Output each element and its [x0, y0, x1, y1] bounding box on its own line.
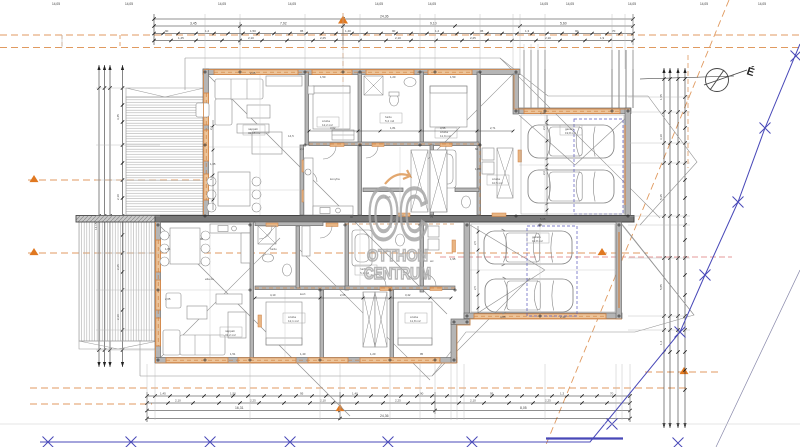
svg-text:1,20: 1,20: [390, 75, 396, 79]
svg-text:60: 60: [475, 147, 479, 151]
svg-text:24,36: 24,36: [380, 414, 389, 418]
svg-text:90: 90: [420, 391, 424, 395]
svg-text:95: 95: [420, 352, 424, 356]
svg-text:2,25: 2,25: [320, 36, 326, 40]
svg-text:5,85: 5,85: [659, 284, 663, 290]
svg-text:14,05: 14,05: [758, 2, 766, 6]
svg-text:14,05: 14,05: [52, 2, 60, 6]
svg-text:konyha: konyha: [330, 177, 340, 181]
svg-text:1,81: 1,81: [165, 247, 171, 251]
svg-text:1,45: 1,45: [160, 391, 166, 395]
svg-text:9,10: 9,10: [430, 21, 437, 25]
svg-text:19,8 m2: 19,8 m2: [565, 131, 576, 135]
svg-text:24,36: 24,36: [380, 14, 389, 18]
svg-text:etkezo: etkezo: [205, 277, 214, 281]
svg-text:32,15 m2: 32,15 m2: [248, 131, 261, 135]
svg-text:90: 90: [392, 29, 396, 33]
svg-text:14,05: 14,05: [375, 2, 383, 6]
svg-text:1,40: 1,40: [352, 391, 358, 395]
svg-text:3,10: 3,10: [659, 134, 663, 140]
svg-text:2,25: 2,25: [250, 398, 256, 402]
svg-text:11,9 m2: 11,9 m2: [440, 134, 451, 138]
svg-text:2,5: 2,5: [473, 241, 477, 245]
svg-text:5,60: 5,60: [560, 21, 567, 25]
svg-text:1,3: 1,3: [525, 29, 530, 33]
svg-text:2,05: 2,05: [165, 297, 171, 301]
svg-text:wc: wc: [430, 259, 434, 263]
svg-text:1,95: 1,95: [450, 257, 456, 261]
svg-text:2,6: 2,6: [542, 171, 546, 175]
svg-text:70: 70: [610, 391, 614, 395]
svg-text:90: 90: [165, 29, 169, 33]
svg-text:1,80: 1,80: [475, 167, 481, 171]
svg-text:1,50: 1,50: [320, 75, 326, 79]
svg-text:8,05: 8,05: [520, 406, 527, 410]
svg-text:12,1 m2: 12,1 m2: [288, 319, 299, 323]
svg-text:95: 95: [300, 391, 304, 395]
svg-text:OTTHON: OTTHON: [367, 246, 428, 265]
svg-text:3,45: 3,45: [116, 114, 120, 120]
svg-text:31,2 m2: 31,2 m2: [225, 333, 236, 337]
svg-text:2,25: 2,25: [545, 398, 551, 402]
svg-text:1,3: 1,3: [560, 391, 565, 395]
svg-text:3,42: 3,42: [405, 293, 411, 297]
svg-text:1,05: 1,05: [210, 162, 216, 166]
svg-text:2,25: 2,25: [470, 36, 476, 40]
svg-text:2,10: 2,10: [395, 36, 401, 40]
svg-text:2,10: 2,10: [248, 36, 254, 40]
svg-text:1,4: 1,4: [209, 176, 213, 180]
svg-text:14,05: 14,05: [566, 2, 574, 6]
svg-text:11,8 m2: 11,8 m2: [410, 319, 421, 323]
svg-text:1,2: 1,2: [435, 29, 440, 33]
svg-text:2,1: 2,1: [209, 126, 213, 130]
svg-text:16,31: 16,31: [235, 406, 244, 410]
svg-text:1,81: 1,81: [390, 126, 396, 130]
svg-text:OC: OC: [368, 175, 428, 255]
svg-text:1,45: 1,45: [178, 36, 184, 40]
svg-text:90: 90: [350, 215, 354, 219]
svg-text:1,4: 1,4: [659, 340, 663, 345]
svg-text:4,10: 4,10: [270, 293, 276, 297]
svg-text:2,40: 2,40: [560, 315, 566, 319]
svg-text:14,05: 14,05: [628, 2, 636, 6]
svg-text:2,10: 2,10: [175, 398, 181, 402]
svg-text:1,40: 1,40: [345, 29, 351, 33]
svg-text:kozl.: kozl.: [300, 292, 306, 296]
svg-text:2,10: 2,10: [116, 194, 120, 200]
svg-text:3,45: 3,45: [190, 21, 197, 25]
svg-text:14,05: 14,05: [700, 2, 708, 6]
svg-text:95: 95: [480, 29, 484, 33]
svg-text:2,05: 2,05: [340, 293, 346, 297]
svg-text:CENTRUM: CENTRUM: [364, 264, 431, 283]
svg-text:75: 75: [430, 215, 434, 219]
svg-text:14,05: 14,05: [218, 2, 226, 6]
svg-text:2,10: 2,10: [545, 36, 551, 40]
svg-text:2,5: 2,5: [473, 286, 477, 290]
svg-text:2,2: 2,2: [300, 147, 304, 151]
svg-text:1,40: 1,40: [300, 352, 306, 356]
svg-text:1,50: 1,50: [450, 75, 456, 79]
svg-text:2,10: 2,10: [320, 398, 326, 402]
svg-text:1,51: 1,51: [230, 352, 236, 356]
svg-text:14,05: 14,05: [125, 2, 133, 6]
svg-text:14,05: 14,05: [428, 2, 436, 6]
svg-text:19,8 m2: 19,8 m2: [532, 239, 543, 243]
svg-text:90: 90: [200, 237, 204, 241]
svg-text:2,25: 2,25: [250, 71, 256, 75]
svg-text:1,50: 1,50: [250, 29, 256, 33]
svg-text:90: 90: [575, 29, 579, 33]
svg-text:1,9: 1,9: [600, 36, 605, 40]
svg-text:2,6: 2,6: [542, 126, 546, 130]
svg-text:95: 95: [300, 29, 304, 33]
svg-text:2,71: 2,71: [490, 126, 496, 130]
svg-text:2,25: 2,25: [395, 398, 401, 402]
svg-text:4,85: 4,85: [500, 315, 506, 319]
svg-text:2,10: 2,10: [470, 398, 476, 402]
svg-text:10,5 m2: 10,5 m2: [492, 181, 503, 185]
svg-text:1,2: 1,2: [205, 29, 210, 33]
svg-text:1,50: 1,50: [230, 391, 236, 395]
svg-text:14,5: 14,5: [288, 134, 294, 138]
svg-text:3,55: 3,55: [440, 126, 446, 130]
svg-text:5,25: 5,25: [659, 194, 663, 200]
svg-text:14,05: 14,05: [540, 2, 548, 6]
svg-text:7,92: 7,92: [280, 21, 287, 25]
svg-text:5,05: 5,05: [540, 217, 546, 221]
svg-text:14,05: 14,05: [288, 2, 296, 6]
svg-text:furdo: furdo: [270, 247, 277, 251]
svg-text:70: 70: [612, 29, 616, 33]
svg-text:1,20: 1,20: [370, 352, 376, 356]
svg-text:3,62: 3,62: [330, 126, 336, 130]
svg-text:5,2 m2: 5,2 m2: [385, 119, 395, 123]
svg-text:95: 95: [490, 391, 494, 395]
